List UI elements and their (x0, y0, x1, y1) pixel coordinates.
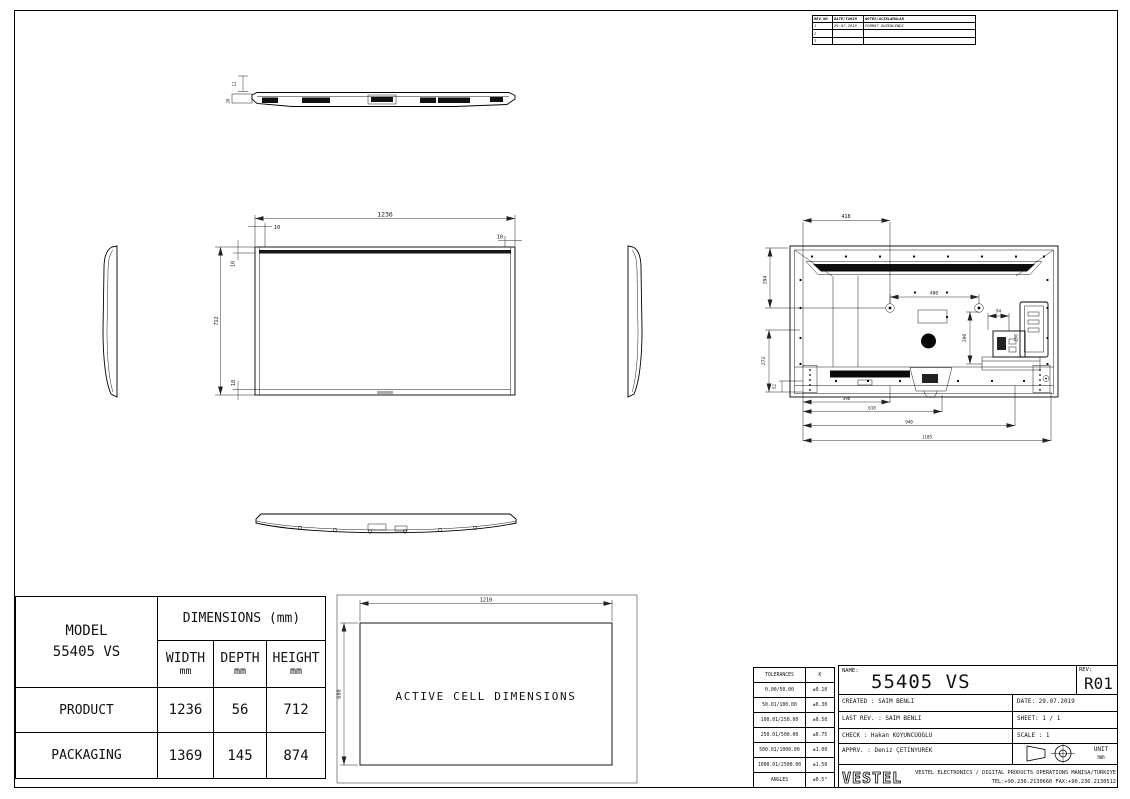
rev-label: REV: (1079, 667, 1092, 673)
dim-label-rear-150: 150 (1014, 334, 1019, 342)
packaging-height: 874 (267, 733, 326, 779)
tol-range: 100.01/250.00 (754, 713, 806, 728)
dimensions-table: MODEL 55405 VS DIMENSIONS (mm) WIDTH mm … (15, 596, 326, 779)
dim-label-rear-52: 52 (772, 384, 777, 390)
rev-header-notes: NOTES/ACIKLAMALAR (864, 16, 976, 23)
tol-value: ±0.50 (806, 713, 835, 728)
projection-symbol-icon (1021, 743, 1083, 764)
date-field: DATE: 29.07.2019 (1013, 694, 1118, 711)
dim-label-rear-273: 273 (761, 357, 767, 366)
table-row-packaging: PACKAGING 1369 145 874 (16, 733, 326, 779)
rev-header-date: DATE/TARIH (833, 16, 864, 23)
packaging-width: 1369 (158, 733, 214, 779)
tolerances-table: TOLERANCES K 0.00/50.00 ±0.10 50.01/100.… (753, 667, 835, 788)
col-header-height: HEIGHT mm (267, 641, 326, 688)
dim-label-front-height: 712 (214, 316, 220, 325)
dim-label-top-edge: 11 (232, 81, 237, 87)
dim-label-cell-width: 1210 (480, 598, 493, 604)
dim-label-front-width: 1236 (377, 211, 393, 219)
dim-label-rear-294: 294 (763, 276, 769, 285)
tv-bottom-view (256, 514, 516, 533)
dim-label-rear-94: 94 (996, 309, 1002, 314)
rev-notes (864, 37, 976, 44)
dim-label-cell-height: 680 (337, 689, 343, 698)
dim-label-rear-400: 400 (930, 291, 939, 297)
col-header-width: WIDTH mm (158, 641, 214, 688)
created-row: CREATED : SAIM BENLI DATE: 29.07.2019 (839, 694, 1118, 712)
active-cell-label: ACTIVE CELL DIMENSIONS (396, 690, 577, 703)
dim-label-rear-200: 200 (962, 334, 968, 343)
tol-angles: ANGLES (754, 773, 806, 788)
tol-range: 500.01/1000.00 (754, 743, 806, 758)
row-label: PACKAGING (16, 733, 158, 779)
unit-value: mm (1088, 754, 1114, 762)
company-line: VESTEL ELECTRONICS / DIGITAL PRODUCTS OP… (915, 769, 1116, 778)
tol-range: 0.00/50.00 (754, 683, 806, 698)
tol-range: 50.01/100.00 (754, 698, 806, 713)
last-rev-by: LAST REV. : SAIM BENLI (839, 711, 1013, 728)
lastrev-row: LAST REV. : SAIM BENLI SHEET: 1 / 1 (839, 711, 1118, 729)
packaging-depth: 145 (214, 733, 267, 779)
tol-range: 1000.01/2500.00 (754, 758, 806, 773)
tol-angles-value: ±0.5° (806, 773, 835, 788)
rev-date (833, 37, 864, 44)
product-width: 1236 (158, 688, 214, 733)
col-header-depth: DEPTH mm (214, 641, 267, 688)
model-label: MODEL (16, 621, 157, 642)
rev-header-no: REV.NO (813, 16, 833, 23)
tv-right-side-view (628, 246, 642, 397)
title-block: NAME: 55405 VS REV: R01 CREATED : SAIM B… (838, 665, 1118, 788)
rev-no: 1 (813, 23, 833, 30)
dim-label-top-depth: 26 (226, 98, 231, 104)
dim-label-bezel-top: 10 (231, 261, 237, 267)
scale-field: SCALE : 1 (1013, 728, 1118, 743)
tv-top-view: 11 26 (226, 76, 516, 107)
tol-header: TOLERANCES (754, 668, 806, 683)
revision-row: 1 29.07.2019 FORMAT DUZENLENDI (813, 23, 976, 30)
unit-label: UNIT (1088, 746, 1114, 754)
table-row-product: PRODUCT 1236 56 712 (16, 688, 326, 733)
revision-row: 3 (813, 37, 976, 44)
revision-table: REV.NO DATE/TARIH NOTES/ACIKLAMALAR 1 29… (812, 15, 976, 45)
name-label: NAME: (842, 668, 859, 674)
rev-box: REV: R01 (1076, 666, 1118, 694)
apprv-row: APPRV. : Deniz ÇETINYUREK UNIT mm (839, 743, 1118, 765)
drawing-sheet: 11 26 1236 10 10 10 (0, 0, 1130, 799)
check-by: CHECK : Hakan KOYUNCUOGLU (839, 728, 1013, 743)
contact-line: TEL:+90.236.2130660 FAX:+90.236.2130512 (915, 778, 1116, 787)
vestel-logo: VESTEL (842, 769, 902, 787)
created-by: CREATED : SAIM BENLI (839, 694, 1013, 711)
product-depth: 56 (214, 688, 267, 733)
dim-label-rear-1105: 1105 (922, 435, 933, 440)
model-name: 55405 VS (871, 671, 971, 693)
dimensions-header: DIMENSIONS (mm) (158, 597, 326, 641)
dim-label-rear-396: 396 (843, 396, 851, 401)
tv-front-view: 1236 10 10 10 712 18 (214, 211, 522, 401)
check-row: CHECK : Hakan KOYUNCUOGLU SCALE : 1 (839, 728, 1118, 744)
active-cell-box: 1210 680 ACTIVE CELL DIMENSIONS (337, 595, 638, 783)
rev-date: 29.07.2019 (833, 23, 864, 30)
rev-date (833, 30, 864, 37)
rev-notes (864, 30, 976, 37)
company-info: VESTEL ELECTRONICS / DIGITAL PRODUCTS OP… (915, 769, 1116, 787)
rev-value: R01 (1084, 674, 1113, 693)
dim-label-rear-618: 618 (868, 406, 876, 411)
product-height: 712 (267, 688, 326, 733)
dim-label-bezel-bottom: 18 (231, 380, 237, 386)
dim-label-bezel-left: 10 (274, 225, 280, 231)
rev-no: 2 (813, 30, 833, 37)
tv-rear-view: 418 294 400 200 94 150 (761, 214, 1058, 441)
model-value: 55405 VS (16, 642, 157, 663)
tol-value: ±1.00 (806, 743, 835, 758)
tol-range: 250.01/500.00 (754, 728, 806, 743)
tol-value: ±0.10 (806, 683, 835, 698)
tol-header-k: K (806, 668, 835, 683)
tol-value: ±0.30 (806, 698, 835, 713)
model-cell: MODEL 55405 VS (16, 597, 158, 688)
rev-no: 3 (813, 37, 833, 44)
tol-value: ±0.75 (806, 728, 835, 743)
dim-label-rear-940: 940 (905, 420, 913, 425)
name-row: NAME: 55405 VS REV: R01 (839, 666, 1118, 695)
rev-notes: FORMAT DUZENLENDI (864, 23, 976, 30)
unit-box: UNIT mm (1088, 746, 1114, 763)
footer-row: VESTEL VESTEL ELECTRONICS / DIGITAL PROD… (839, 764, 1118, 789)
dim-label-bezel-right: 10 (497, 235, 503, 241)
approved-by: APPRV. : Deniz ÇETINYUREK (839, 743, 1013, 764)
dim-label-rear-418: 418 (841, 214, 850, 220)
tol-value: ±1.50 (806, 758, 835, 773)
sheet-field: SHEET: 1 / 1 (1013, 711, 1118, 728)
row-label: PRODUCT (16, 688, 158, 733)
revision-row: 2 (813, 30, 976, 37)
tv-left-side-view (103, 246, 117, 397)
